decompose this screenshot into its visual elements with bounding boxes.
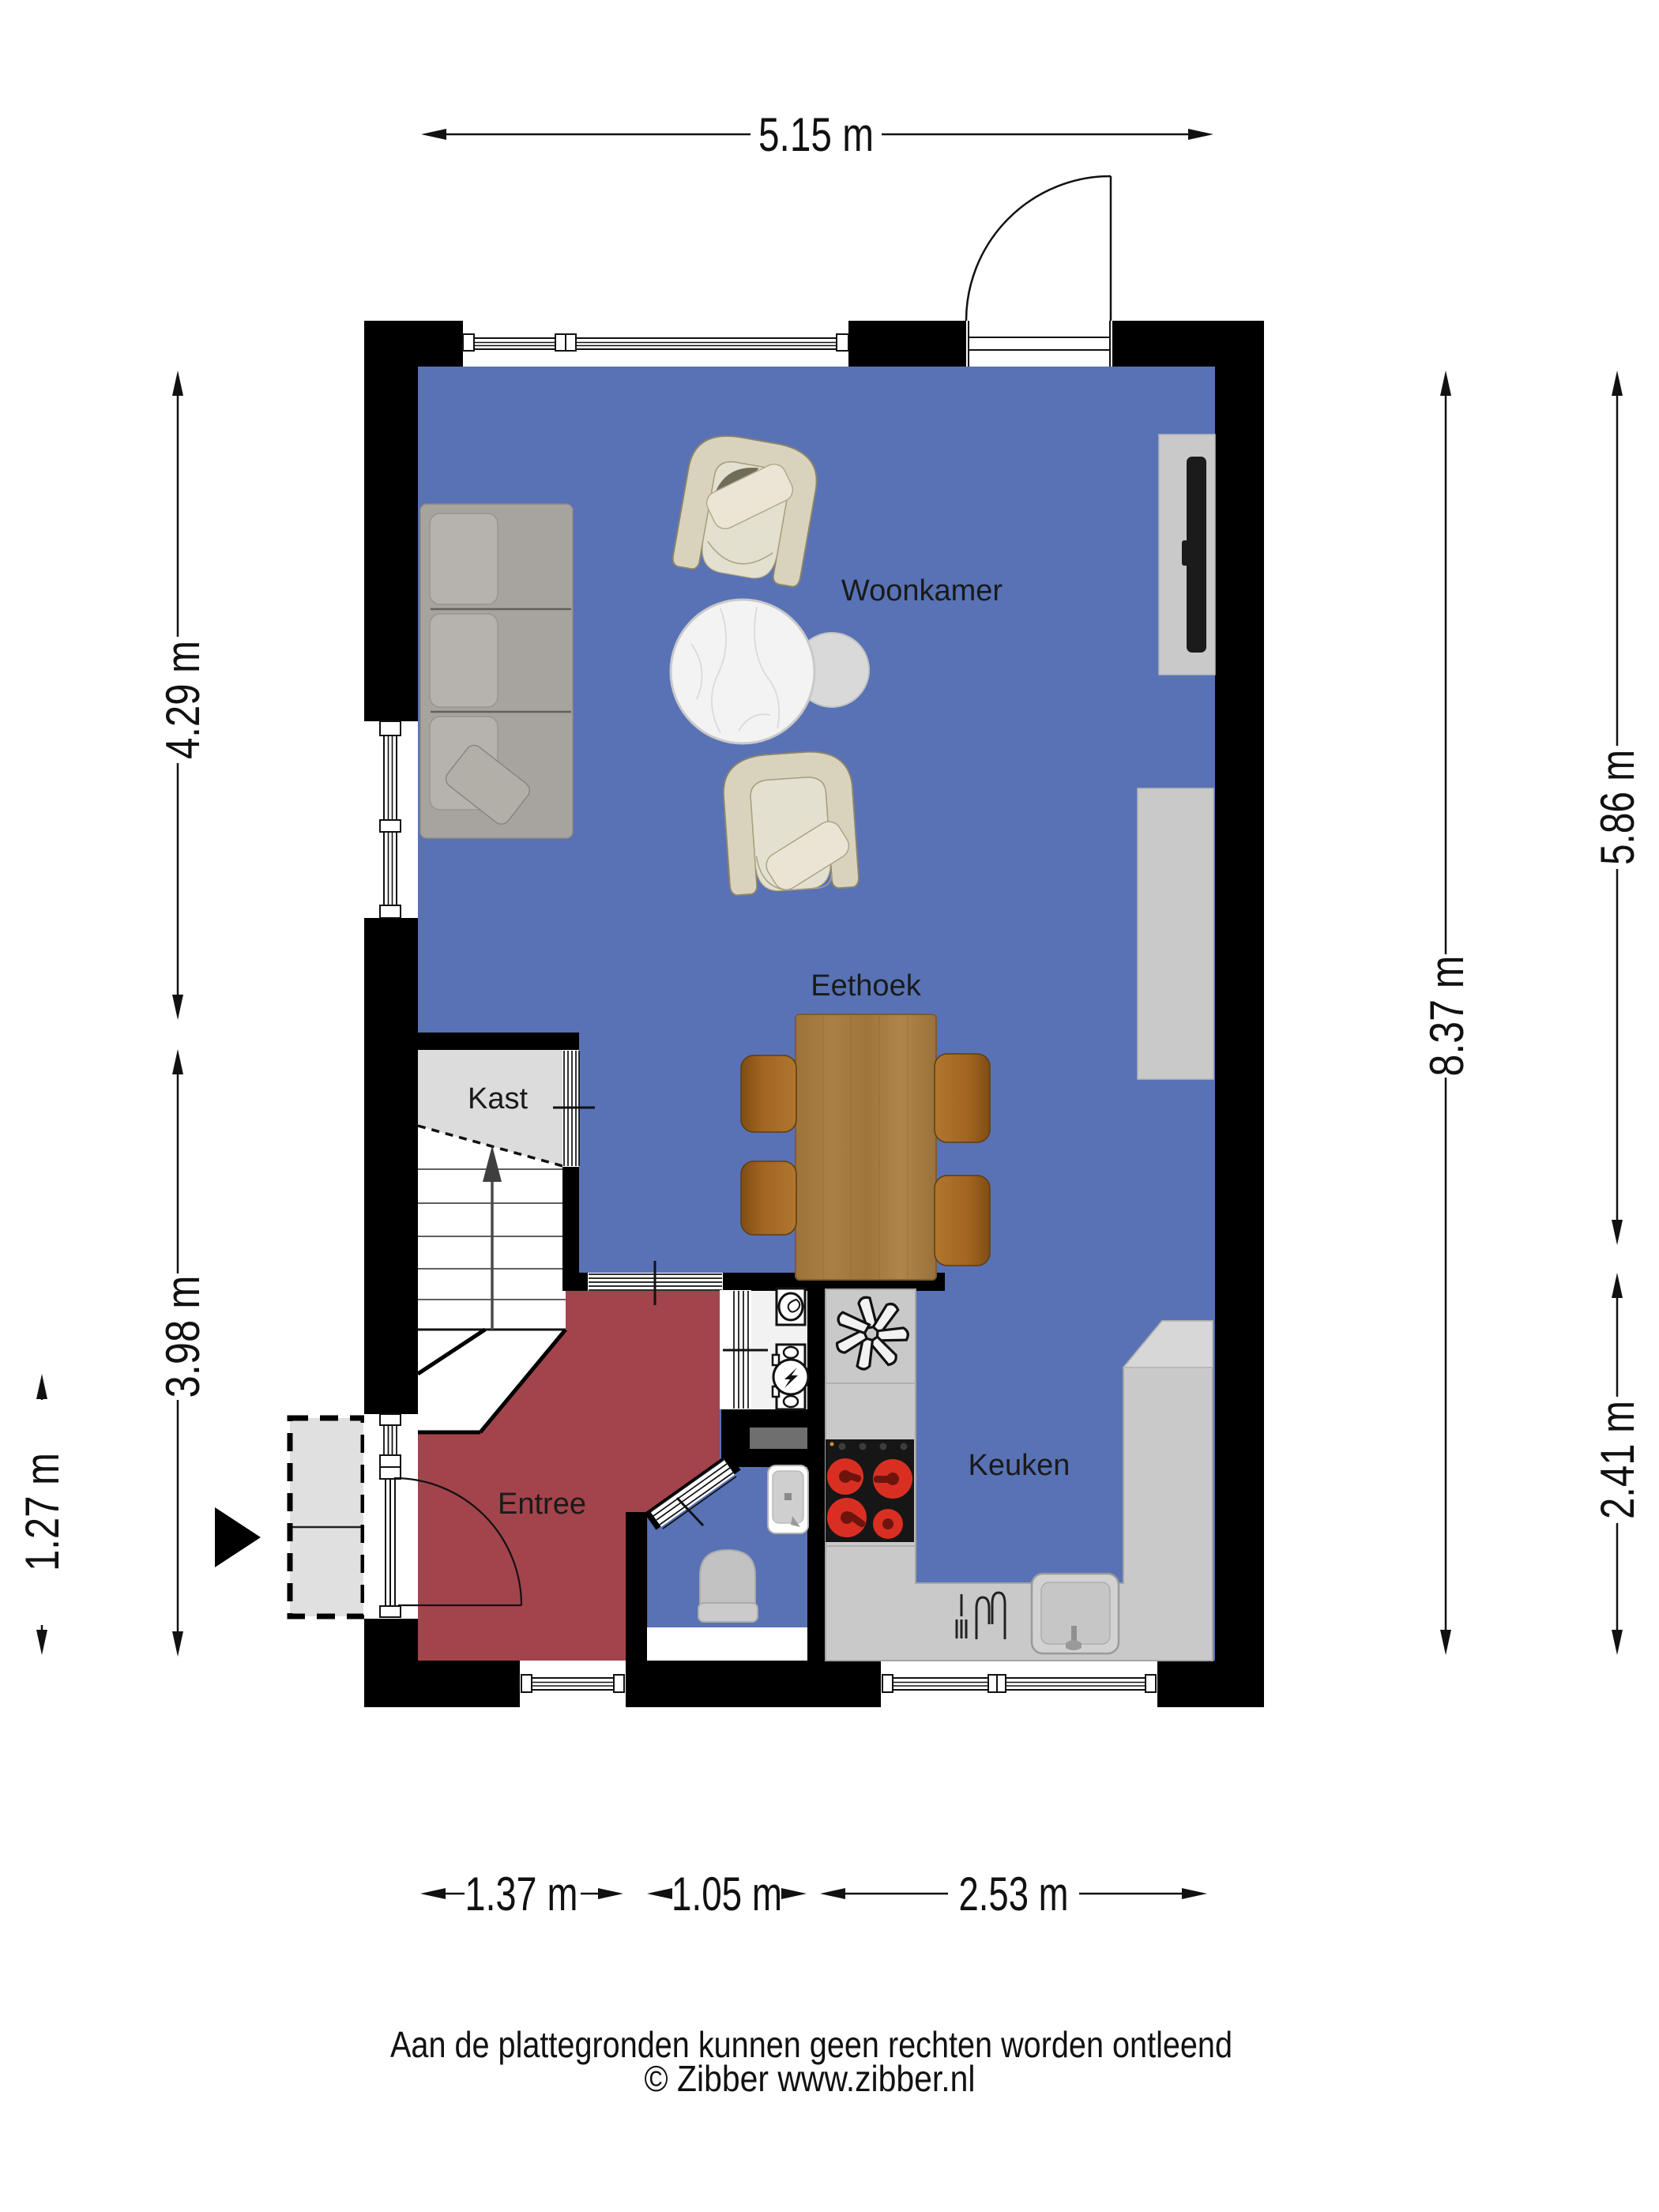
svg-text:2.41 m: 2.41 m <box>1591 1401 1644 1519</box>
svg-text:Eethoek: Eethoek <box>811 969 921 1003</box>
svg-text:1.37 m: 1.37 m <box>465 1868 578 1920</box>
svg-text:1.27 m: 1.27 m <box>16 1453 69 1571</box>
svg-text:Kast: Kast <box>468 1082 528 1115</box>
svg-text:5.86 m: 5.86 m <box>1591 750 1644 865</box>
svg-text:5.15 m: 5.15 m <box>758 108 874 161</box>
svg-text:© Zibber www.zibber.nl: © Zibber www.zibber.nl <box>645 2058 976 2099</box>
svg-text:2.53 m: 2.53 m <box>959 1868 1069 1920</box>
svg-text:Entree: Entree <box>498 1488 586 1521</box>
svg-text:Woonkamer: Woonkamer <box>841 574 1003 608</box>
svg-text:3.98 m: 3.98 m <box>156 1276 209 1398</box>
svg-text:4.29 m: 4.29 m <box>156 641 209 759</box>
svg-text:8.37 m: 8.37 m <box>1420 956 1473 1077</box>
svg-text:Keuken: Keuken <box>969 1449 1070 1482</box>
svg-text:1.05 m: 1.05 m <box>671 1868 782 1920</box>
